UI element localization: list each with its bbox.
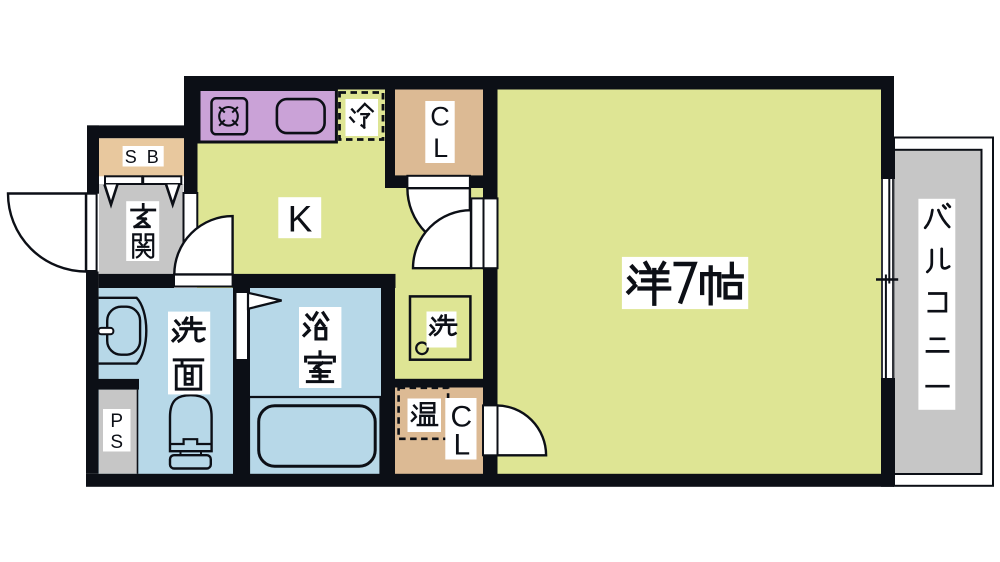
svg-text:L: L bbox=[453, 429, 470, 462]
svg-text:S: S bbox=[110, 432, 123, 453]
svg-text:S B: S B bbox=[125, 147, 162, 167]
svg-text:K: K bbox=[288, 199, 313, 240]
svg-text:P: P bbox=[110, 411, 123, 432]
svg-text:L: L bbox=[433, 133, 448, 163]
svg-text:C: C bbox=[430, 102, 450, 132]
